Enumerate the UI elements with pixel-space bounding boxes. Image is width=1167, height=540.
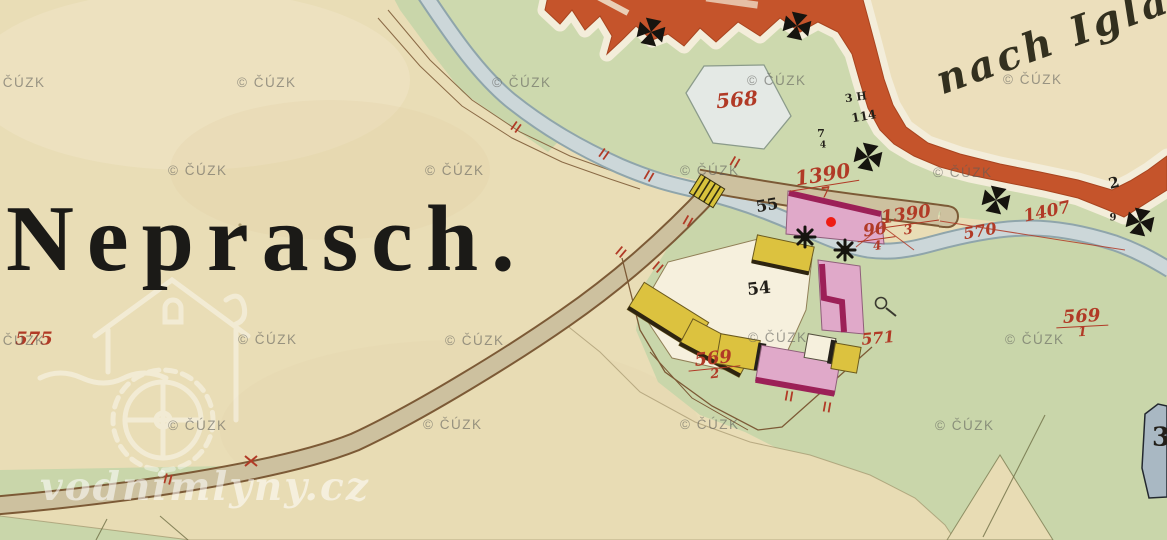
slate-building [1142, 404, 1167, 498]
mill-wheel-icon [795, 227, 815, 247]
south-row-yellow [716, 334, 761, 370]
historic-cadastral-map-canvas[interactable]: Neprasch. nach Iglau 5681390713903904570… [0, 0, 1167, 540]
south-row-yellow2 [831, 343, 861, 373]
map-marker-dot [826, 217, 836, 227]
mill-wheel-icon [835, 240, 855, 260]
map-artwork [0, 0, 1167, 540]
pink-wing-east [818, 260, 864, 334]
